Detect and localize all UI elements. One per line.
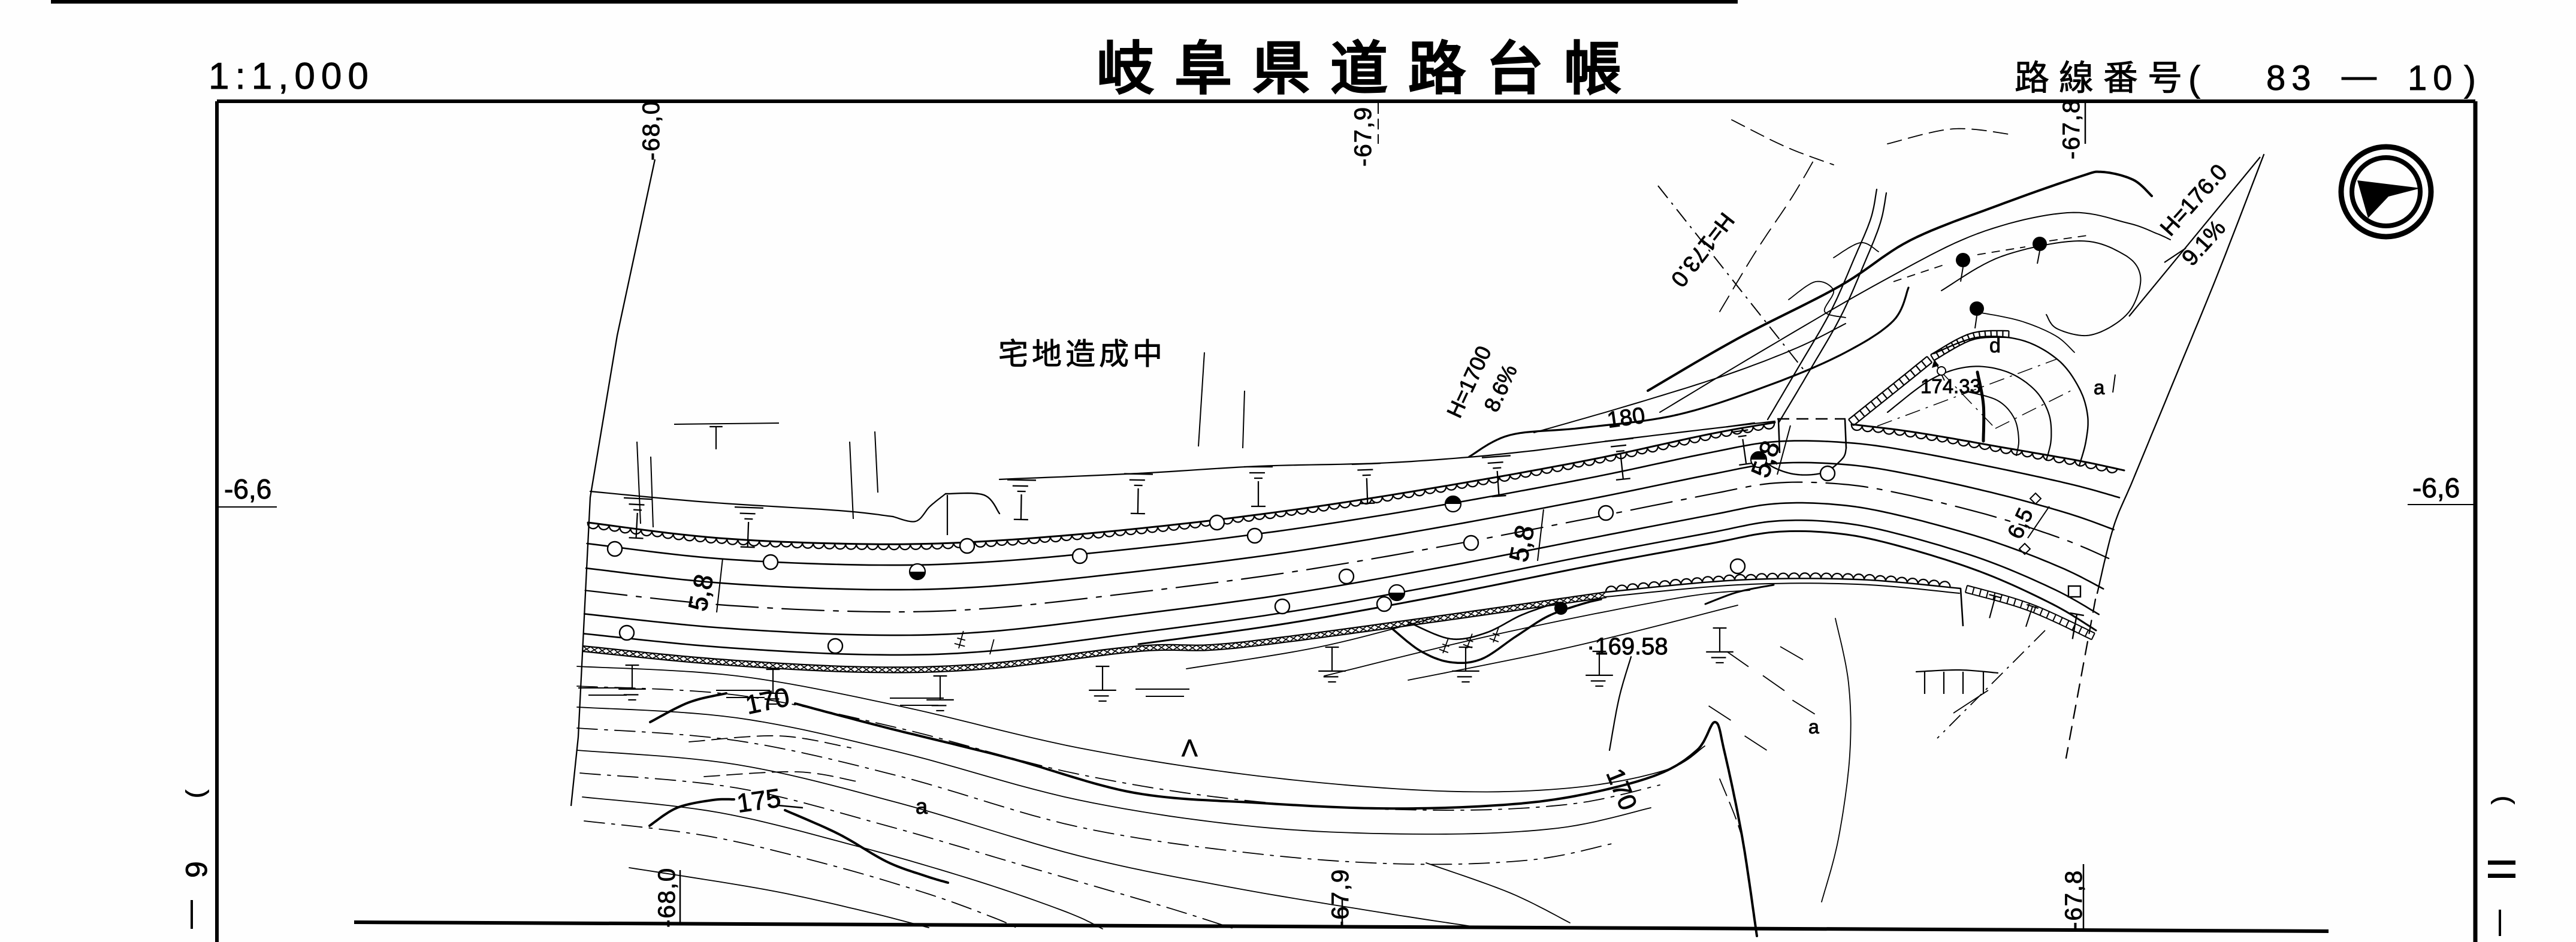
svg-text:岐阜県道路台帳: 岐阜県道路台帳: [1097, 37, 1642, 101]
svg-text:174.33: 174.33: [1920, 375, 1981, 397]
svg-text:83: 83: [2266, 59, 2317, 98]
svg-text:a: a: [916, 794, 928, 819]
svg-text:-67,8: -67,8: [2058, 99, 2085, 159]
svg-text:): ): [2464, 59, 2476, 99]
svg-text:a: a: [1808, 716, 1819, 738]
svg-text:10: 10: [2408, 59, 2459, 98]
svg-text:180: 180: [1605, 403, 1647, 433]
svg-text:路線番号: 路線番号: [2015, 59, 2192, 98]
svg-text:-68,0: -68,0: [654, 867, 680, 928]
svg-text:a: a: [2094, 376, 2105, 398]
svg-text:9: 9: [180, 860, 213, 878]
svg-text:-67,9: -67,9: [1327, 868, 1354, 929]
svg-text:): ): [2487, 795, 2515, 804]
svg-text:1:1,000: 1:1,000: [209, 56, 375, 97]
svg-text:d: d: [1989, 334, 2001, 357]
svg-text:-67,9: -67,9: [1350, 106, 1376, 167]
svg-text:-68,0: -68,0: [638, 100, 665, 161]
svg-text:宅地造成中: 宅地造成中: [998, 337, 1166, 371]
svg-text:—: —: [2342, 56, 2376, 95]
svg-text:Λ: Λ: [1182, 735, 1198, 762]
svg-text:-6,6: -6,6: [224, 473, 271, 505]
svg-text:-6,6: -6,6: [2412, 472, 2460, 503]
svg-text:(: (: [2188, 59, 2200, 99]
svg-text:(: (: [181, 789, 209, 798]
